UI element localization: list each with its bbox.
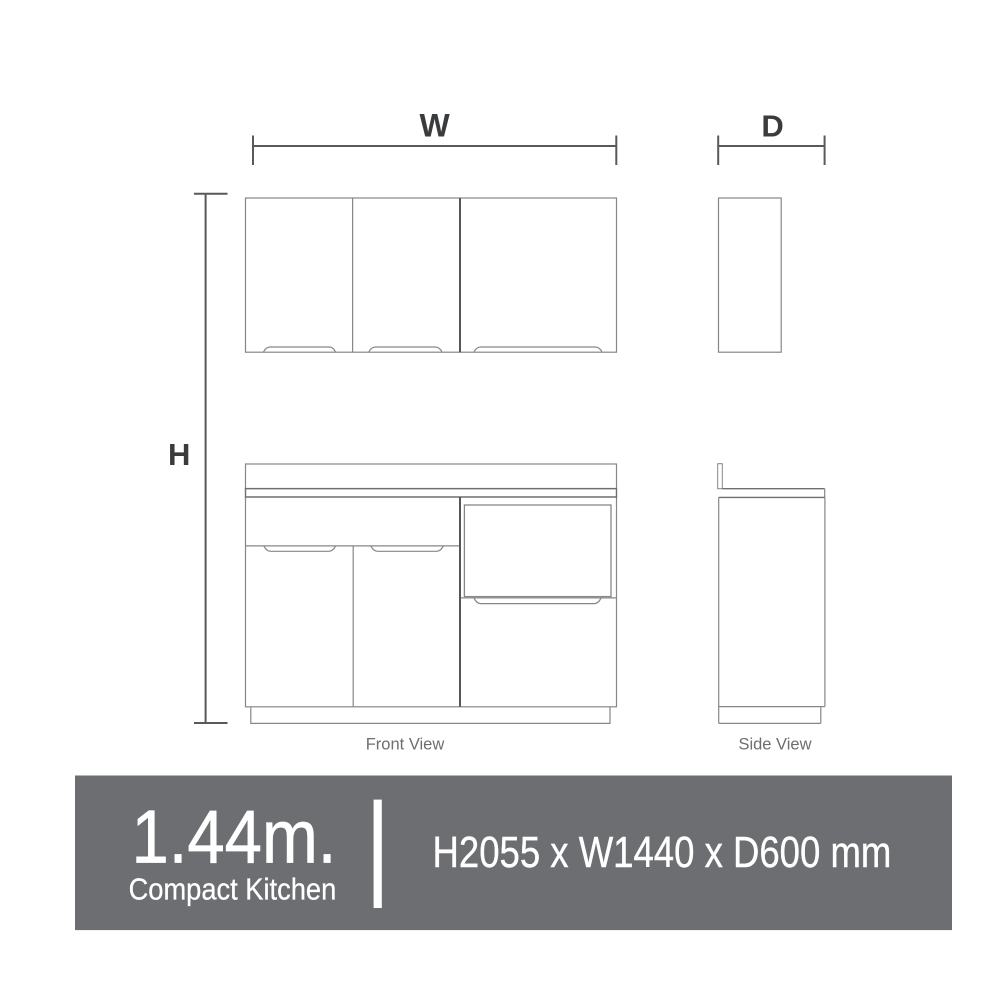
svg-text:Front View: Front View [366,736,445,754]
svg-text:Compact Kitchen: Compact Kitchen [129,873,337,907]
svg-text:1.44m.: 1.44m. [132,795,337,880]
svg-text:D: D [761,109,783,144]
svg-text:Side View: Side View [738,736,811,754]
svg-text:W: W [419,108,450,144]
svg-text:H: H [168,437,190,472]
svg-text:H2055 x W1440 x D600 mm: H2055 x W1440 x D600 mm [433,828,892,877]
